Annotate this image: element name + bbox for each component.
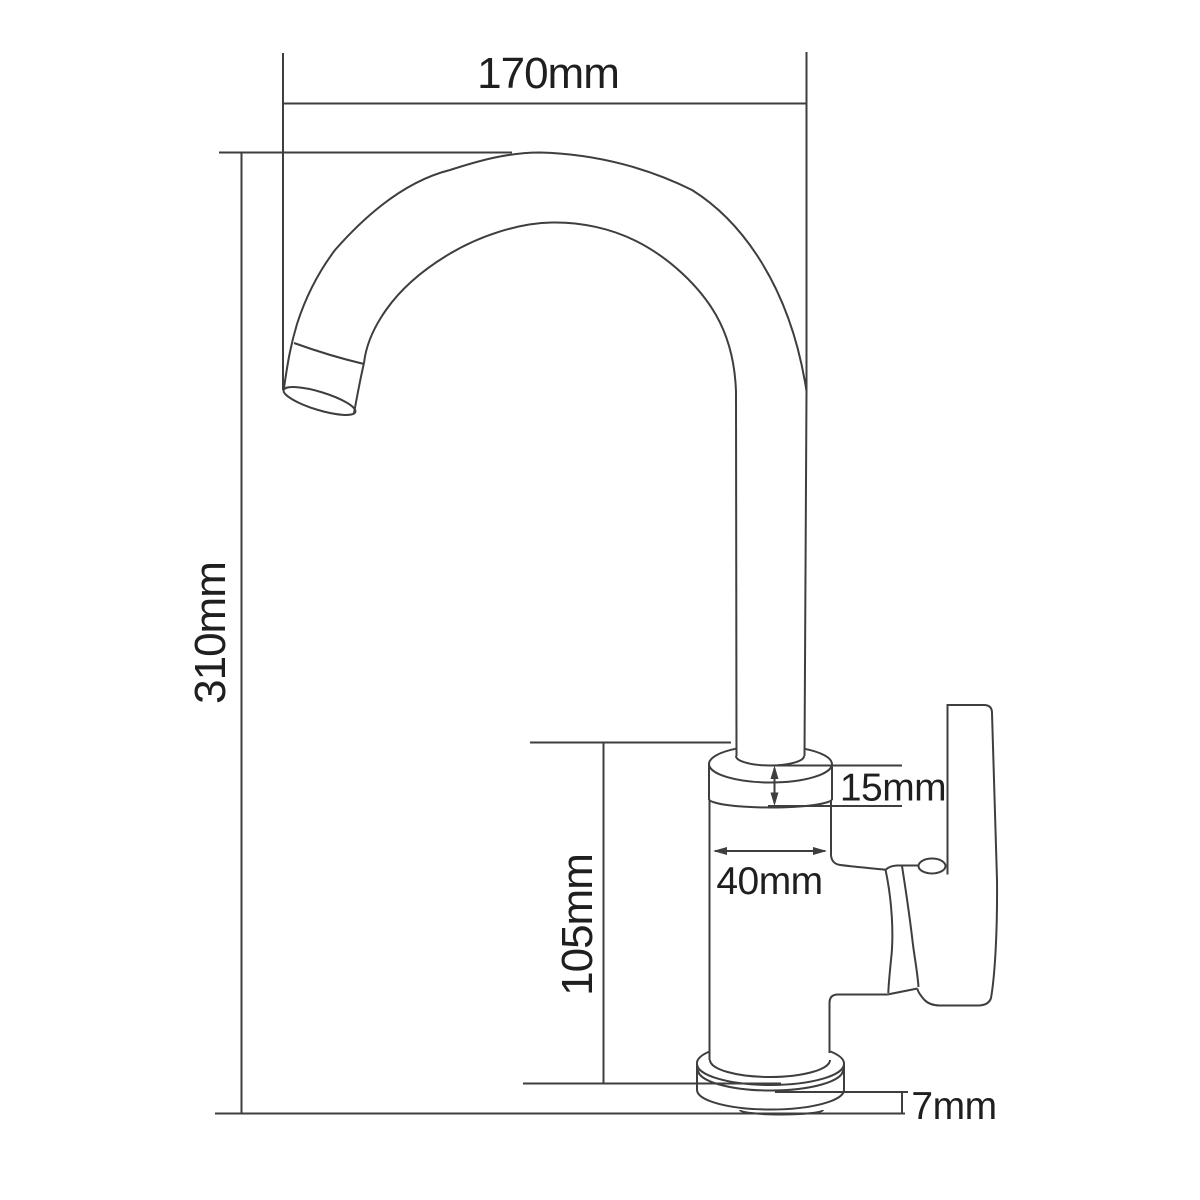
svg-text:310mm: 310mm [186, 562, 235, 704]
svg-text:40mm: 40mm [716, 860, 822, 903]
svg-text:170mm: 170mm [477, 49, 619, 98]
svg-text:105mm: 105mm [553, 854, 602, 996]
svg-text:15mm: 15mm [840, 767, 946, 810]
svg-text:7mm: 7mm [911, 1085, 996, 1128]
